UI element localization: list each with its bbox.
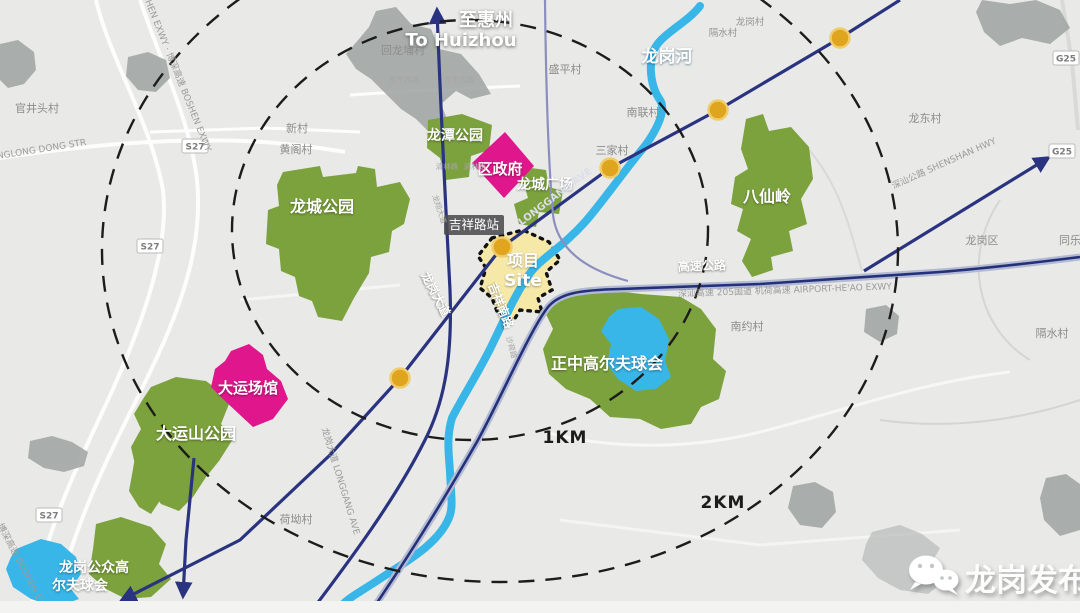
village-nanyue: 南约村: [731, 319, 764, 333]
village-shengping: 盛平村: [549, 62, 582, 76]
road-longping-2: 龙平西路: [444, 74, 474, 84]
shield-g25: G25: [1052, 148, 1072, 158]
site-location-map: 吉祥路站 S27 S27 S27 G25 G25 至惠州 To Huizhou …: [0, 0, 1080, 613]
shield-s27: S27: [39, 512, 58, 522]
park-label-dayunshan: 大运山公园: [156, 424, 236, 443]
village-longdong: 龙东村: [909, 111, 942, 125]
village-longgangcun: 龙岗村: [736, 16, 765, 28]
village-huangge: 黄阁村: [280, 142, 313, 156]
village-heao: 荷坳村: [280, 512, 313, 526]
park-label-longtan: 龙潭公园: [426, 127, 483, 144]
park-label-baxianling: 八仙岭: [742, 187, 791, 206]
station-dot: [601, 159, 620, 178]
park-label-longcheng: 龙城公园: [289, 197, 354, 216]
map-canvas: 吉祥路站 S27 S27 S27 G25 G25 至惠州 To Huizhou …: [0, 0, 1080, 613]
village-tongle: 同乐: [1059, 234, 1080, 247]
village-guanjingtou: 官井头村: [15, 101, 59, 115]
ring-label-2km: 2KM: [701, 493, 746, 513]
site-label-cn: 项目: [507, 251, 539, 270]
road-expressway-cn: 高速公路: [678, 257, 727, 274]
golf-label-public-1: 龙岗公众高: [58, 559, 129, 576]
village-sanjia: 三家村: [596, 143, 629, 157]
golf-label-public-2: 尔夫球会: [52, 577, 109, 594]
shield-g25: G25: [1056, 55, 1076, 65]
village-huilongpu: 回龙埔村: [381, 43, 425, 57]
watermark-label: 龙岗发布: [965, 563, 1080, 599]
golf-label-zhengzhong: 正中高尔夫球会: [551, 354, 663, 373]
station-dot: [831, 29, 850, 48]
village-geshui-east: 隔水村: [1036, 326, 1069, 340]
village-geshui: 隔水村: [709, 27, 738, 39]
direction-label-cn: 至惠州: [459, 10, 513, 31]
station-dot: [391, 369, 410, 388]
station-plate: 吉祥路站: [444, 215, 504, 235]
road-qinglin-1: 清林路: [436, 161, 459, 171]
station-dot: [709, 101, 728, 120]
village-xincun: 新村: [286, 121, 308, 135]
site-label-en: Site: [504, 271, 542, 291]
road-qinglin-2: 清林路: [464, 161, 487, 171]
bottom-strip: [0, 601, 1080, 613]
village-nanlian: 南联村: [627, 105, 660, 119]
river-label: 龙岗河: [641, 46, 693, 67]
venue-label-universiade: 大运场馆: [218, 379, 278, 397]
village-longgangqu: 龙岗区: [966, 234, 999, 247]
road-longping-1: 龙平西路: [389, 74, 419, 84]
ring-label-1km: 1KM: [543, 428, 588, 448]
shield-s27: S27: [140, 243, 159, 253]
station-label: 吉祥路站: [449, 217, 499, 232]
